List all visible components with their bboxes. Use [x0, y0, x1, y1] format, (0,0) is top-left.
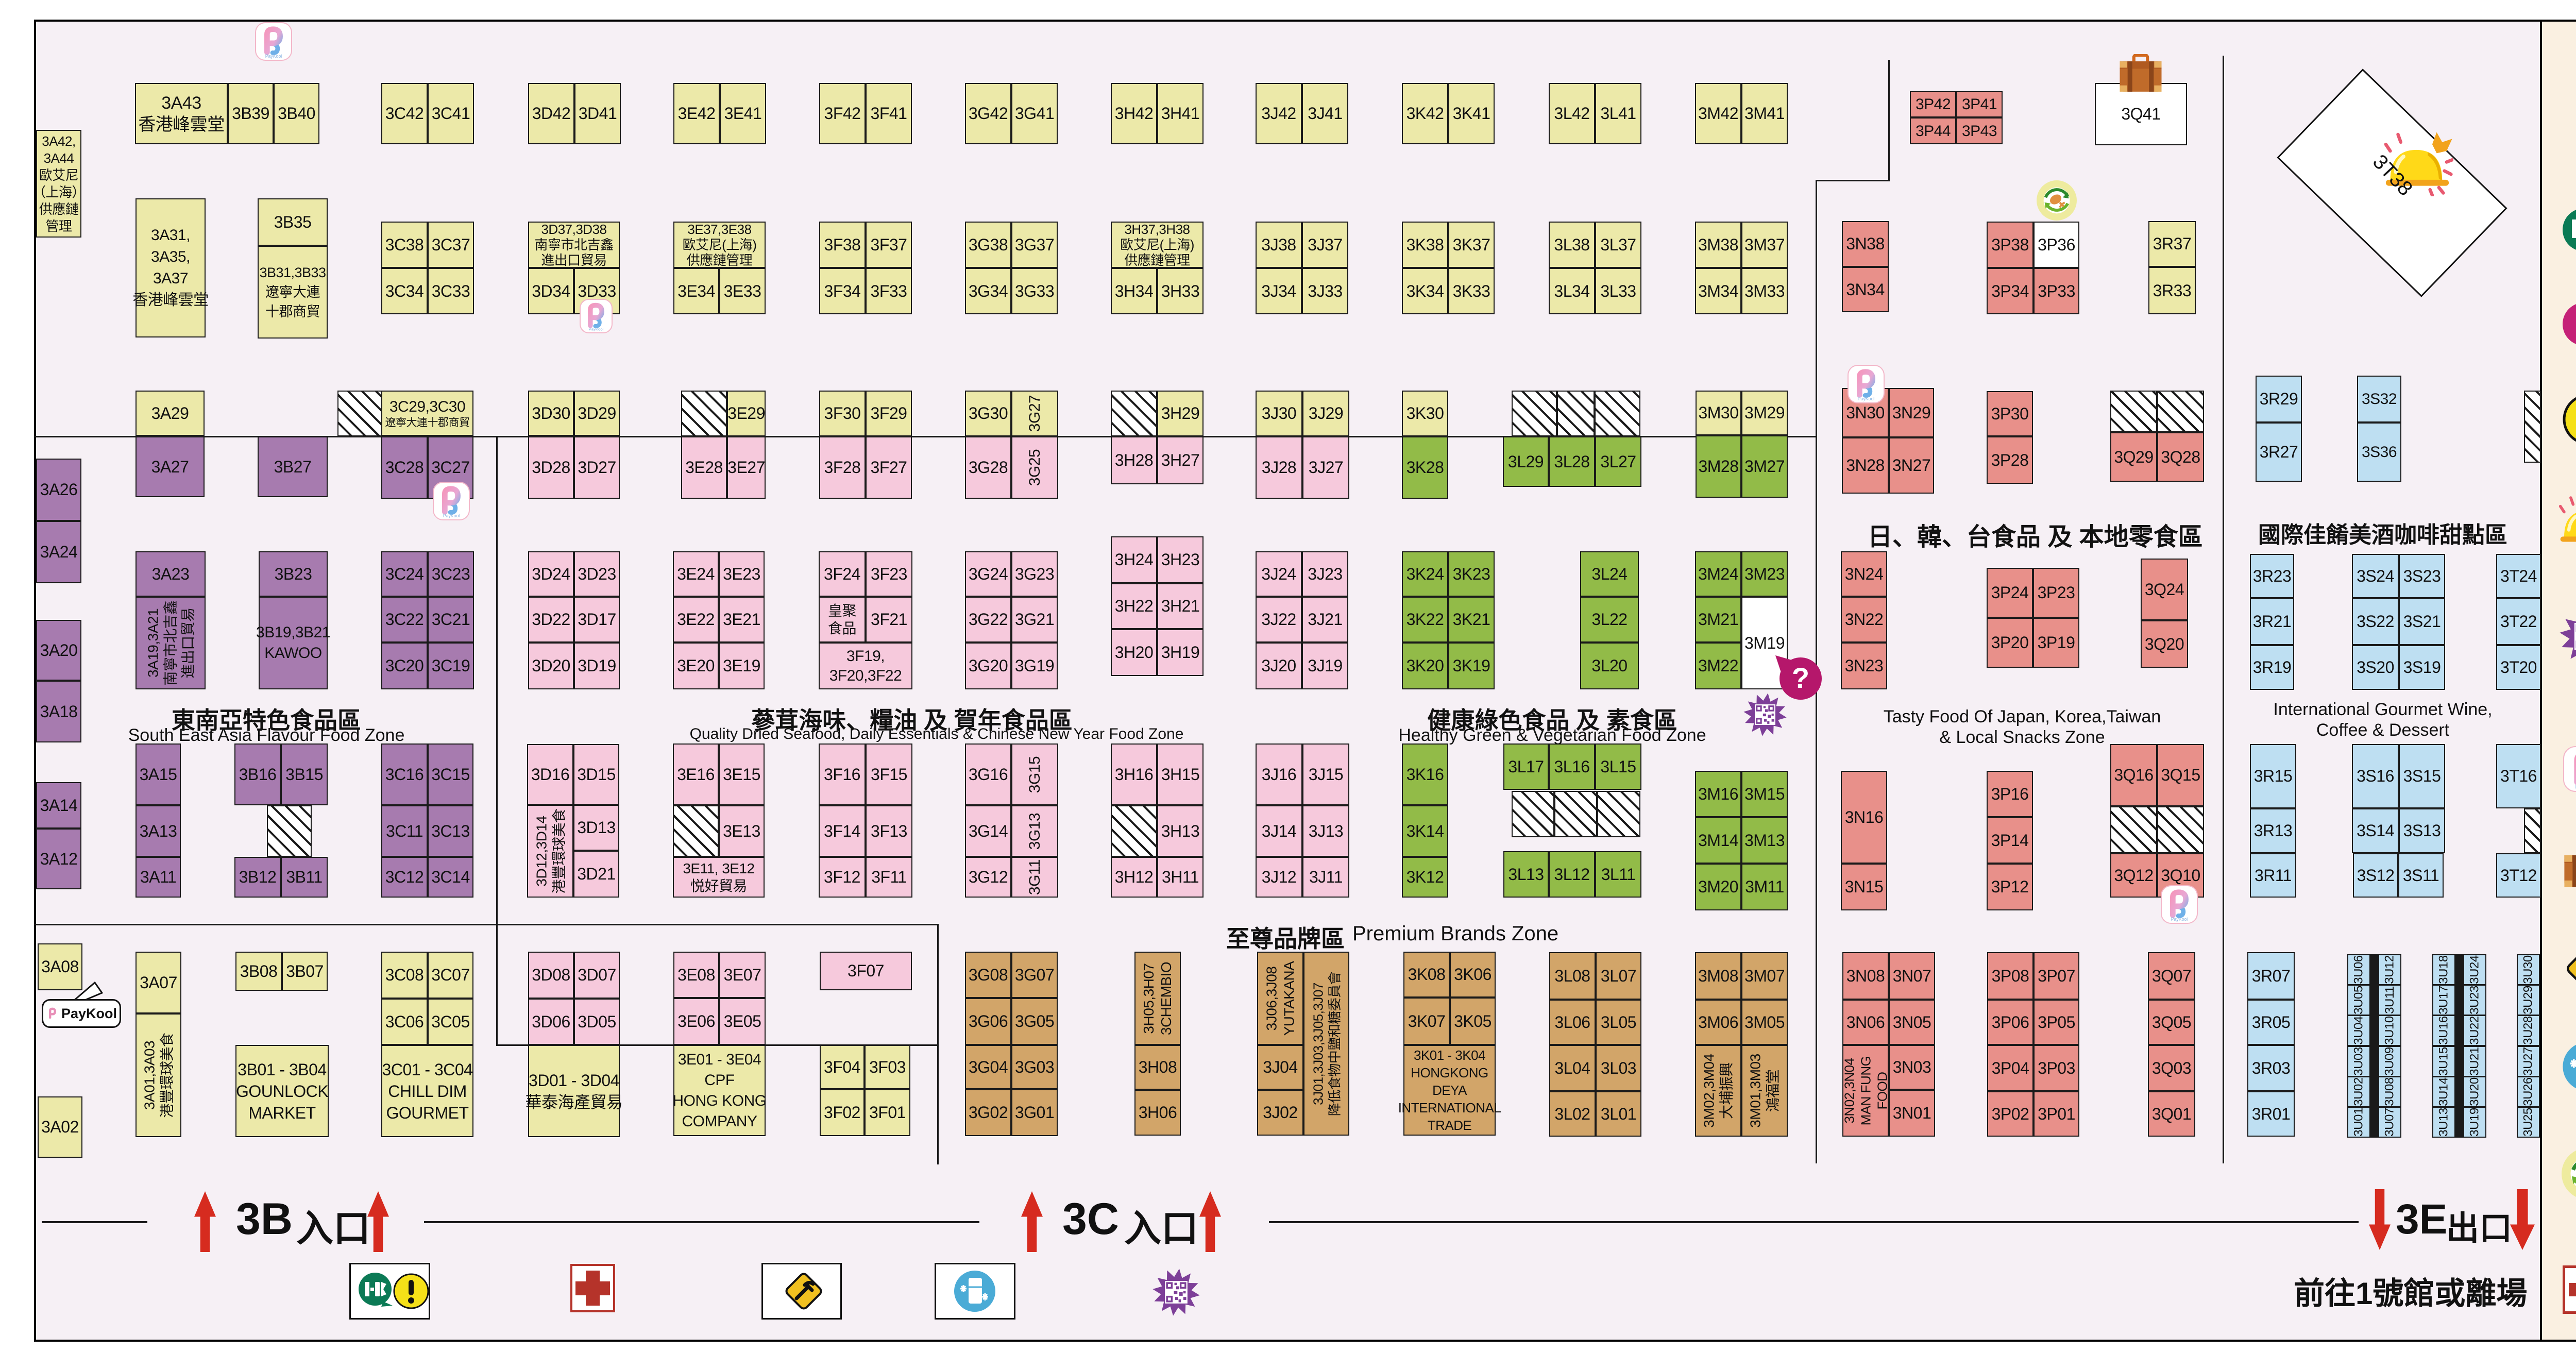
svg-text:PayKool: PayKool [589, 327, 604, 331]
svg-text:PayKool: PayKool [443, 513, 460, 518]
svg-text:?: ? [1792, 662, 1809, 694]
svg-text:PayKool: PayKool [265, 54, 282, 59]
svg-text:PayKool: PayKool [1858, 396, 1875, 401]
svg-text:PayKool: PayKool [2171, 917, 2188, 922]
